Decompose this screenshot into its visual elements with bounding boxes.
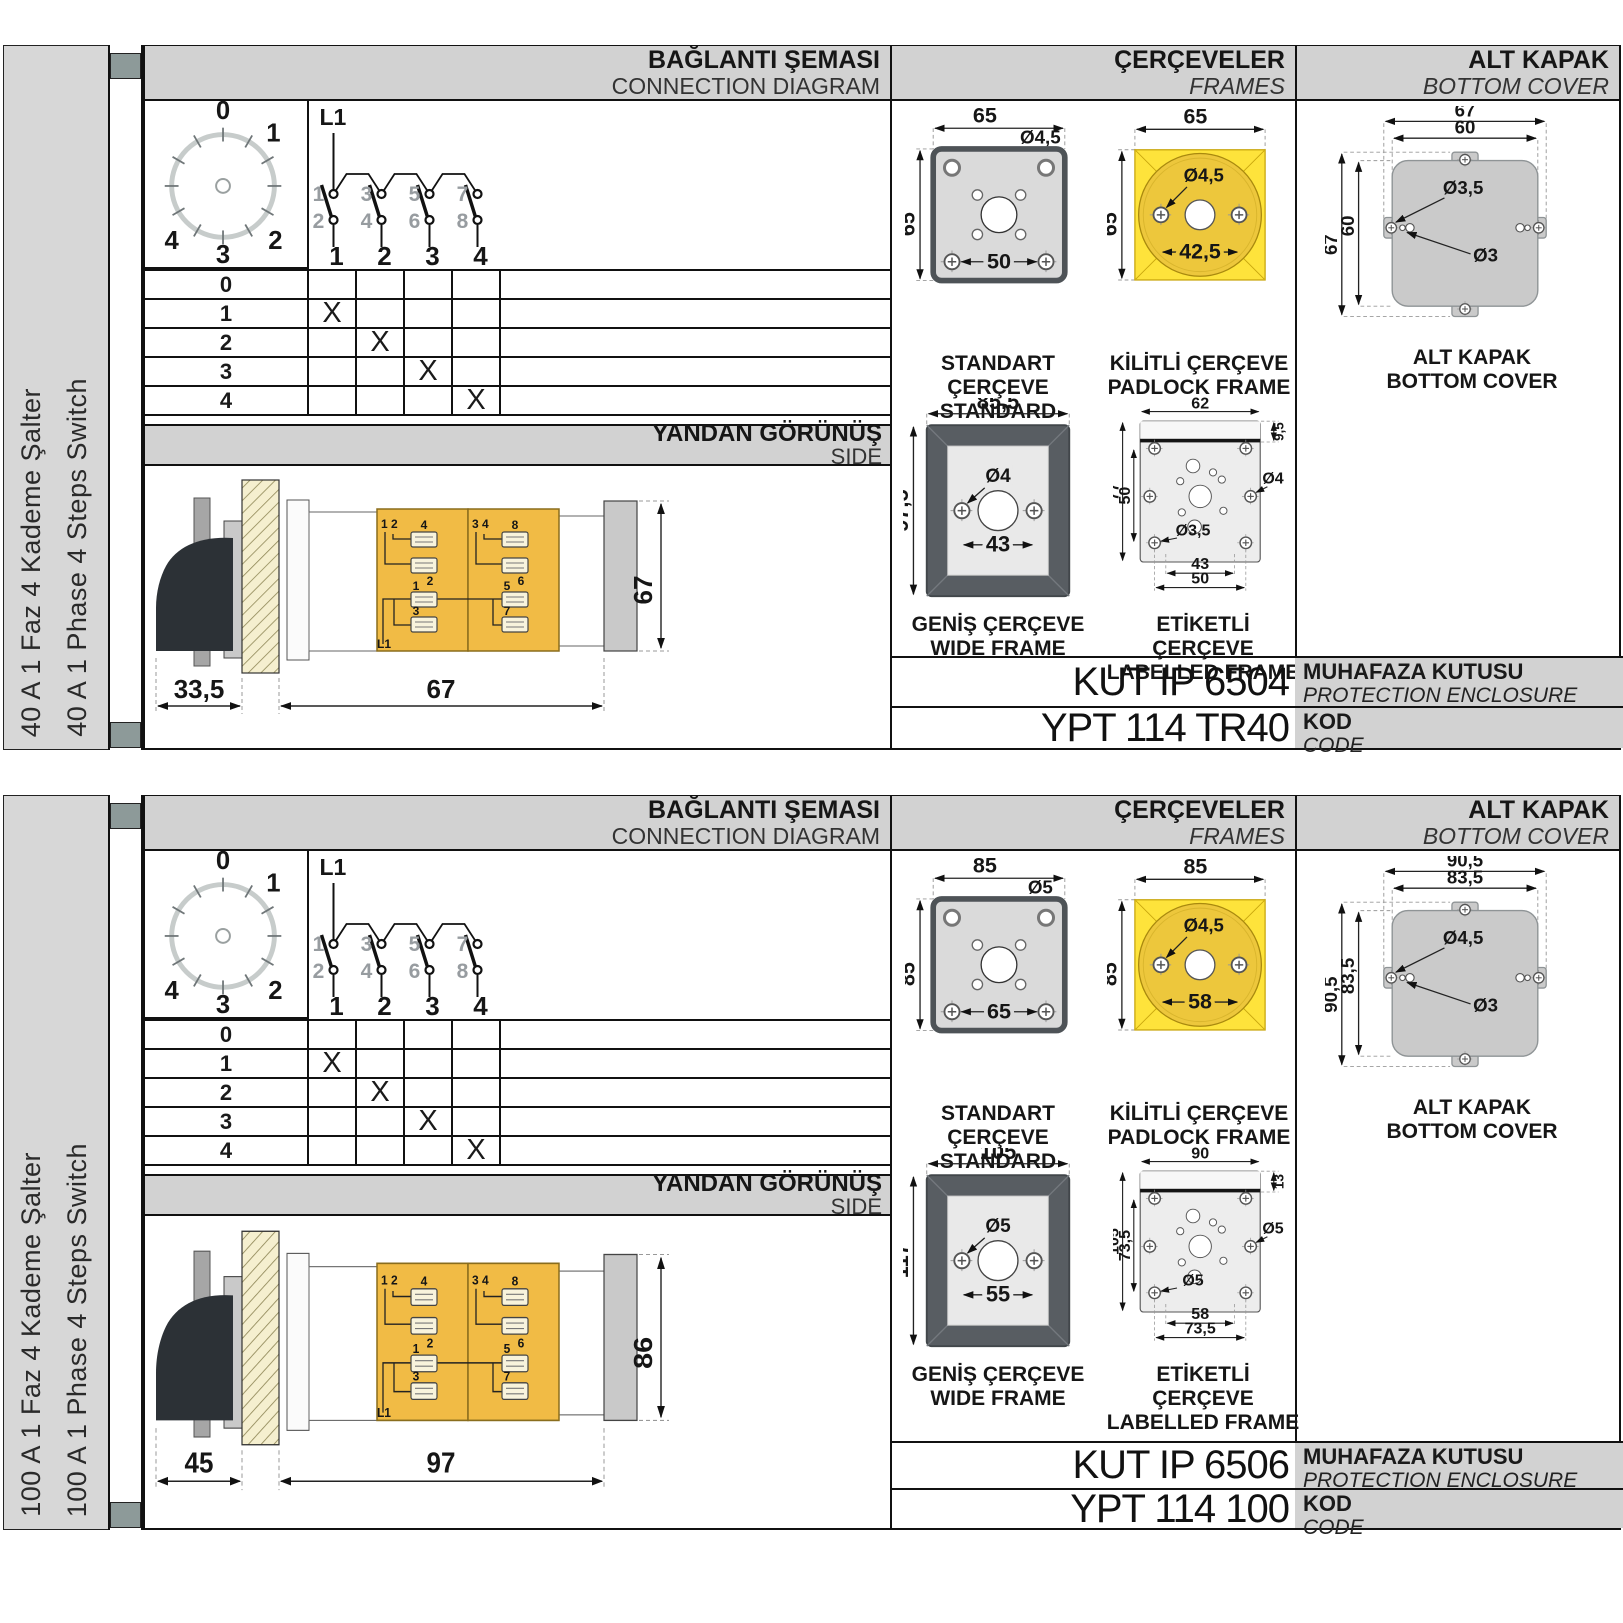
contact-label: 2 [313,210,325,233]
sidebar: 100 A 1 Faz 4 Kademe Şalter 100 A 1 Phas… [3,795,110,1530]
dim-hole: Ø4,5 [1184,164,1224,185]
bottom-cover-caption: ALT KAPAK BOTTOM COVER [1347,346,1597,394]
enclosure-label: MUHAFAZA KUTUSU PROTECTION ENCLOSURE [1295,1443,1623,1488]
labelled-frame-caption: ETİKETLİ ÇERÇEVE LABELLED FRAME [1105,1363,1301,1435]
row-label: 4 [145,387,309,414]
dim-height: 85 [1107,962,1121,986]
product-title-tr: 40 A 1 Faz 4 Kademe Şalter [16,388,47,737]
mark-cell: X [405,358,453,385]
mark-cell [405,1137,453,1164]
mark-cell [357,300,405,327]
dim-hole-a: Ø4,5 [1443,927,1483,948]
padlock-frame-figure: 65 Ø4,5 42,5 65 [1107,104,1293,349]
side-subtitle: SIDE [831,1196,882,1218]
header-frames: ÇERÇEVELER FRAMES [890,796,1295,849]
product-title-en: 100 A 1 Phase 4 Steps Switch [62,1143,93,1517]
standard-frame-figure: 85 Ø5 65 85 [905,854,1093,1099]
table-row: 0 [145,269,892,298]
dim-hole-b: Ø3 [1473,244,1498,265]
mark-cell: X [405,1108,453,1135]
dim-h-in: 83,5 [1337,958,1358,994]
caption-tr: GENİŞ ÇERÇEVE [902,613,1094,637]
table-row: 0 [145,1019,892,1048]
rotary-dial-figure: 0 1 2 3 4 [145,851,309,1019]
header-subtitle: FRAMES [1189,824,1285,849]
binding-gutter [108,795,143,1530]
row-label: 2 [145,1079,309,1106]
mark-cell [357,1108,405,1135]
divider [890,46,892,748]
wide-frame-caption: GENİŞ ÇERÇEVE WIDE FRAME [902,613,1094,661]
dim-tab: 13 [1271,1174,1286,1190]
label-en: CODE [1303,734,1623,757]
table-row: 1 X [145,298,892,327]
wide-frame-figure: 85,5 Ø4 43 97,5 [903,398,1093,610]
dim-width: 85 [973,854,997,878]
mark-cell [453,300,501,327]
mark-cell [357,387,405,414]
datasheet-panel: BAĞLANTI ŞEMASI CONNECTION DIAGRAM ÇERÇE… [143,45,1621,750]
caption-tr: KİLİTLİ ÇERÇEVE [1103,1102,1295,1126]
row-label: 0 [145,1021,309,1048]
circuit-schematic: L1 1 3 5 7 [309,851,892,1019]
side-title: YANDAN GÖRÜNÜŞ [652,1172,882,1196]
product-title-en: 40 A 1 Phase 4 Steps Switch [62,378,93,737]
mark-cell: X [309,1050,357,1077]
dim-hole-left: Ø3,5 [1176,523,1211,540]
table-row: 2 X [145,327,892,356]
filler-cell [501,1079,892,1106]
mark-cell [405,387,453,414]
phase-label: L1 [377,1406,391,1421]
mark-cell [405,271,453,298]
terminal-number: 5 [504,1341,511,1356]
dim-w-in: 83,5 [1447,867,1483,888]
mark-cell [405,300,453,327]
binding-gutter [108,45,143,750]
filler-cell [501,1137,892,1164]
product-section-40a: 40 A 1 Faz 4 Kademe Şalter 40 A 1 Phase … [0,45,1623,750]
contact-label: 1 [313,933,325,956]
filler-cell [501,387,892,414]
dim-height: 85 [905,962,919,986]
contact-label: 3 [361,933,373,956]
index-tab [110,1502,141,1528]
row-label: 4 [145,1137,309,1164]
header-connection-diagram: BAĞLANTI ŞEMASI CONNECTION DIAGRAM [145,46,890,99]
label-tr: KOD [1303,1491,1623,1516]
dim-w-in: 60 [1455,117,1476,138]
dim-pitch: 58 [1188,990,1212,1014]
caption-tr: ALT KAPAK [1347,1096,1597,1120]
mark-cell [357,1021,405,1048]
product-title-tr: 100 A 1 Faz 4 Kademe Şalter [16,1152,47,1517]
dim-hole: Ø5 [985,1216,1011,1237]
mark-cell: X [357,1079,405,1106]
wide-frame-figure: 105 Ø5 55 117 [903,1148,1093,1360]
dim-hole-a: Ø3,5 [1443,177,1483,198]
padlock-frame-caption: KİLİTLİ ÇERÇEVE PADLOCK FRAME [1103,352,1295,400]
terminal-number: 4 [421,1274,428,1289]
dim-width: 65 [1183,105,1207,129]
row-label: 2 [145,329,309,356]
dim-pitch: 43 [986,532,1010,557]
contact-label: 2 [313,960,325,983]
filler-cell [501,1050,892,1077]
dim-hole: Ø4,5 [1020,126,1061,147]
label-en: PROTECTION ENCLOSURE [1303,684,1623,707]
terminal-number: 8 [512,1274,519,1289]
dim-pitch-b: 50 [1191,571,1209,588]
contact-label: 7 [457,933,469,956]
dim-width: 65 [973,104,997,128]
filler-cell [501,271,892,298]
datasheet-panel: BAĞLANTI ŞEMASI CONNECTION DIAGRAM ÇERÇE… [143,795,1621,1530]
filler-cell [501,1108,892,1135]
labelled-frame-figure: 90 13 105 73,5 Ø5 [1113,1144,1297,1360]
terminal-number: 1 [413,1341,420,1356]
dim-pitch: 65 [987,998,1011,1023]
dim-front: 33,5 [174,674,225,704]
mark-cell [309,271,357,298]
phase-label: L1 [320,104,347,130]
side-title: YANDAN GÖRÜNÜŞ [652,422,882,446]
dim-h-in: 60 [1337,216,1358,237]
row-label: 3 [145,1108,309,1135]
dim-width: 62 [1191,395,1209,412]
terminal-number: 1 [413,579,420,593]
mark-cell [453,358,501,385]
terminal-number: 4 [421,518,428,532]
contact-label: 5 [409,933,421,956]
label-tr: MUHAFAZA KUTUSU [1303,1444,1623,1469]
table-row: 3 X [145,356,892,385]
dim-height: 67 [628,576,658,605]
padlock-frame-caption: KİLİTLİ ÇERÇEVE PADLOCK FRAME [1103,1102,1295,1150]
header-connection-diagram: BAĞLANTI ŞEMASI CONNECTION DIAGRAM [145,796,890,849]
dial-pos-0: 0 [216,851,230,875]
row-label: 3 [145,358,309,385]
caption-tr: STANDART ÇERÇEVE [902,1102,1094,1150]
dim-inner-height: 73,5 [1117,1230,1134,1261]
dim-body: 97 [427,1446,456,1479]
column-headers: BAĞLANTI ŞEMASI CONNECTION DIAGRAM ÇERÇE… [145,796,1619,851]
side-view-band: YANDAN GÖRÜNÜŞ SIDE [145,424,892,466]
terminal-number: 6 [518,574,525,588]
header-subtitle: FRAMES [1189,74,1285,99]
contact-label: 8 [457,210,469,233]
filler-cell [501,1021,892,1048]
dial-pos-1: 1 [266,120,280,148]
terminal-label: 1 [329,241,343,269]
code-row: YPT 114 TR40 KOD CODE [892,706,1623,748]
filler-cell [501,300,892,327]
caption-en: BOTTOM COVER [1347,1120,1597,1144]
product-code: YPT 114 TR40 [892,708,1295,748]
terminal-pair-label: 1 2 [381,1273,398,1288]
caption-tr: ETİKETLİ ÇERÇEVE [1105,613,1301,661]
side-view-figure: 1 2 3 4 4 8 2 6 1 5 3 7 L1 86 45 97 [147,1218,889,1531]
dial-pos-2: 2 [268,977,282,1005]
dim-hole-right: Ø4 [1262,471,1283,488]
mark-cell [453,329,501,356]
terminal-number: 7 [504,604,511,618]
mark-cell [405,329,453,356]
side-subtitle: SIDE [831,446,882,468]
mark-cell [453,1079,501,1106]
dim-width: 85,5 [977,398,1020,414]
label-tr: KOD [1303,709,1623,734]
index-tab [110,53,141,79]
header-title: BAĞLANTI ŞEMASI [648,47,880,74]
enclosure-label: MUHAFAZA KUTUSU PROTECTION ENCLOSURE [1295,658,1623,706]
dial-pos-4: 4 [165,977,180,1005]
rotary-dial-figure: 0 1 2 3 4 [145,101,309,269]
dial-pos-4: 4 [165,227,180,255]
caption-tr: GENİŞ ÇERÇEVE [902,1363,1094,1387]
terminal-label: 2 [377,241,391,269]
column-headers: BAĞLANTI ŞEMASI CONNECTION DIAGRAM ÇERÇE… [145,46,1619,101]
dial-pos-1: 1 [266,870,280,898]
side-view-band: YANDAN GÖRÜNÜŞ SIDE [145,1174,892,1216]
header-title: ÇERÇEVELER [1114,797,1285,824]
terminal-number: 6 [518,1336,525,1351]
side-view-figure: 1 2 3 4 4 8 2 6 1 5 3 7 L1 67 33,5 67 [147,468,889,751]
mark-cell: X [453,1137,501,1164]
mark-cell [309,358,357,385]
sidebar: 40 A 1 Faz 4 Kademe Şalter 40 A 1 Phase … [3,45,110,750]
index-tab [110,722,141,748]
row-label: 1 [145,300,309,327]
mark-cell [405,1079,453,1106]
mark-cell: X [453,387,501,414]
header-bottom-cover: ALT KAPAK BOTTOM COVER [1295,796,1619,849]
mark-cell [309,1137,357,1164]
switching-table: 0 1 X 2 X [145,1019,892,1166]
enclosure-code: KUT IP 6504 [892,658,1295,706]
table-row: 4 X [145,385,892,414]
contact-label: 4 [361,210,373,233]
header-title: ALT KAPAK [1468,797,1609,824]
bottom-cover-caption: ALT KAPAK BOTTOM COVER [1347,1096,1597,1144]
dial-pos-2: 2 [268,227,282,255]
phase-label: L1 [377,637,391,651]
dim-height: 86 [628,1337,657,1369]
terminal-label: 1 [329,991,343,1019]
contact-label: 6 [409,960,421,983]
contact-label: 5 [409,183,421,206]
dim-pitch: 42,5 [1179,240,1221,264]
dim-width: 90 [1191,1145,1209,1162]
mark-cell: X [357,329,405,356]
caption-en: WIDE FRAME [902,1387,1094,1411]
index-tab [110,803,141,829]
terminal-label: 3 [425,241,439,269]
dim-inner-height: 50 [1117,487,1134,505]
dial-pos-3: 3 [216,991,230,1015]
enclosure-row: KUT IP 6506 MUHAFAZA KUTUSU PROTECTION E… [892,1441,1623,1488]
dim-tab: 9,5 [1271,422,1286,441]
padlock-frame-figure: 85 Ø4,5 58 85 [1107,854,1293,1099]
switching-table: 0 1 X 2 X [145,269,892,416]
dim-front: 45 [185,1446,214,1479]
terminal-pair-label: 3 4 [472,1273,489,1288]
caption-en: BOTTOM COVER [1347,370,1597,394]
dim-pitch-b: 73,5 [1185,1321,1216,1338]
mark-cell [309,329,357,356]
label-en: CODE [1303,1516,1623,1539]
header-subtitle: CONNECTION DIAGRAM [612,824,880,849]
mark-cell [309,1079,357,1106]
terminal-label: 2 [377,991,391,1019]
header-title: ÇERÇEVELER [1114,47,1285,74]
terminal-label: 4 [473,241,488,269]
label-tr: MUHAFAZA KUTUSU [1303,659,1623,684]
mark-cell: X [309,300,357,327]
code-label: KOD CODE [1295,708,1623,748]
table-row: 4 X [145,1135,892,1164]
terminal-number: 8 [512,518,519,532]
dim-width: 85 [1183,855,1207,879]
header-bottom-cover: ALT KAPAK BOTTOM COVER [1295,46,1619,99]
mark-cell [357,1137,405,1164]
caption-tr: STANDART ÇERÇEVE [902,352,1094,400]
filler-cell [501,358,892,385]
divider [890,796,892,1528]
row-label: 1 [145,1050,309,1077]
terminal-pair-label: 1 2 [381,517,398,531]
dim-hole-right: Ø5 [1262,1221,1283,1238]
dim-hole-left: Ø5 [1182,1273,1203,1290]
contact-label: 1 [313,183,325,206]
filler-cell [501,329,892,356]
dim-hole: Ø4,5 [1184,914,1224,935]
row-label: 0 [145,271,309,298]
bottom-cover-figure: 90,5 83,5 90,5 83,5 [1325,856,1605,1094]
dim-width: 105 [980,1148,1016,1164]
mark-cell [453,1108,501,1135]
mark-cell [309,387,357,414]
mark-cell [453,271,501,298]
dim-pitch: 50 [987,248,1011,273]
enclosure-code: KUT IP 6506 [892,1443,1295,1488]
terminal-number: 5 [504,579,511,593]
contact-label: 8 [457,960,469,983]
header-title: ALT KAPAK [1468,47,1609,74]
wide-frame-caption: GENİŞ ÇERÇEVE WIDE FRAME [902,1363,1094,1411]
contact-label: 6 [409,210,421,233]
mark-cell [453,1021,501,1048]
mark-cell [405,1050,453,1077]
dial-pos-0: 0 [216,101,230,125]
labelled-frame-figure: 62 9,5 77 50 Ø4 [1113,394,1297,610]
dial-pos-3: 3 [216,241,230,265]
code-row: YPT 114 100 KOD CODE [892,1488,1623,1528]
caption-tr: ALT KAPAK [1347,346,1597,370]
table-row: 1 X [145,1048,892,1077]
mark-cell [309,1021,357,1048]
header-frames: ÇERÇEVELER FRAMES [890,46,1295,99]
mark-cell [453,1050,501,1077]
caption-tr: ETİKETLİ ÇERÇEVE [1105,1363,1301,1411]
terminal-number: 2 [427,1336,434,1351]
dim-hole: Ø5 [1028,876,1053,897]
terminal-number: 3 [413,604,420,618]
circuit-schematic: L1 1 3 5 7 [309,101,892,269]
phase-label: L1 [320,854,347,880]
dim-pitch: 55 [986,1282,1010,1307]
table-row: 2 X [145,1077,892,1106]
contact-label: 7 [457,183,469,206]
header-subtitle: BOTTOM COVER [1423,824,1609,849]
dim-hole-b: Ø3 [1473,994,1498,1015]
mark-cell [357,271,405,298]
caption-tr: KİLİTLİ ÇERÇEVE [1103,352,1295,376]
enclosure-row: KUT IP 6504 MUHAFAZA KUTUSU PROTECTION E… [892,656,1623,706]
dim-height: 117 [903,1243,913,1278]
bottom-cover-figure: 67 60 67 60 [1325,106,1605,344]
mark-cell [357,358,405,385]
dim-height: 97,5 [903,489,913,532]
terminal-label: 3 [425,991,439,1019]
dim-hole: Ø4 [985,466,1011,487]
standard-frame-figure: 65 Ø4,5 50 65 [905,104,1093,349]
header-title: BAĞLANTI ŞEMASI [648,797,880,824]
mark-cell [405,1021,453,1048]
terminal-number: 2 [427,574,434,588]
header-subtitle: BOTTOM COVER [1423,74,1609,99]
dim-height: 65 [1107,212,1121,236]
dim-height: 65 [905,212,919,236]
table-row: 3 X [145,1106,892,1135]
dim-h-out: 67 [1325,234,1341,255]
contact-label: 4 [361,960,373,983]
contact-label: 3 [361,183,373,206]
header-subtitle: CONNECTION DIAGRAM [612,74,880,99]
mark-cell [309,1108,357,1135]
terminal-label: 4 [473,991,488,1019]
terminal-number: 3 [413,1369,420,1384]
terminal-number: 7 [504,1369,511,1384]
terminal-pair-label: 3 4 [472,517,489,531]
code-label: KOD CODE [1295,1490,1623,1528]
dim-body: 67 [427,674,456,704]
caption-en: LABELLED FRAME [1105,1411,1301,1435]
product-code: YPT 114 100 [892,1490,1295,1528]
product-section-100a: 100 A 1 Faz 4 Kademe Şalter 100 A 1 Phas… [0,795,1623,1530]
mark-cell [357,1050,405,1077]
